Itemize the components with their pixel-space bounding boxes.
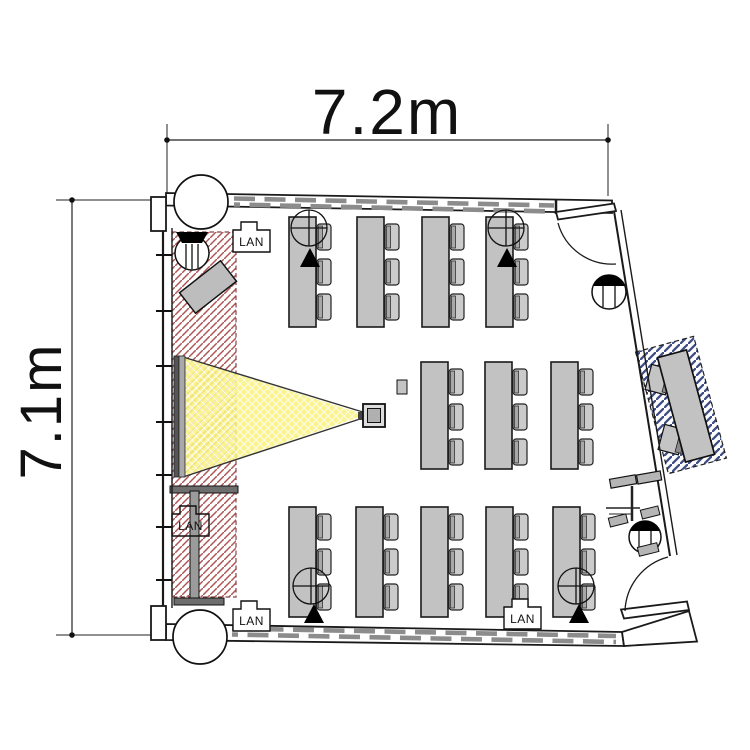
chair — [385, 294, 399, 320]
table — [289, 217, 316, 327]
chair — [579, 404, 593, 430]
chair — [449, 584, 463, 610]
chair — [513, 404, 527, 430]
chair — [579, 369, 593, 395]
table-with-chairs — [551, 362, 593, 469]
width-dimension-label: 7.2m — [312, 76, 462, 148]
table — [357, 217, 384, 327]
chair — [514, 259, 528, 285]
table — [421, 507, 448, 617]
table-with-chairs — [356, 507, 398, 617]
chair — [384, 584, 398, 610]
column — [173, 610, 227, 664]
table-with-chairs — [486, 217, 528, 327]
chair — [514, 549, 528, 575]
floor-plan-canvas: 7.2m 7.1m — [0, 0, 750, 750]
chair — [317, 514, 331, 540]
table-with-chairs — [553, 507, 595, 617]
chair — [581, 549, 595, 575]
chair — [513, 369, 527, 395]
chair — [449, 514, 463, 540]
column — [174, 175, 228, 229]
chair — [317, 294, 331, 320]
coat-rack — [606, 471, 662, 556]
chair — [581, 514, 595, 540]
dim-tick — [605, 137, 611, 143]
table — [422, 217, 449, 327]
chair — [385, 224, 399, 250]
chair — [514, 514, 528, 540]
lan-outlet-label: LAN — [239, 235, 264, 249]
table-with-chairs — [421, 362, 463, 469]
lan-outlet: LAN — [233, 601, 270, 631]
table — [485, 362, 512, 469]
chair — [449, 549, 463, 575]
lan-outlet: LAN — [233, 222, 270, 252]
chair — [385, 259, 399, 285]
chair — [579, 439, 593, 465]
chair — [450, 224, 464, 250]
table — [486, 507, 513, 617]
door-swing-arc — [558, 223, 616, 264]
chair — [449, 369, 463, 395]
dim-tick — [164, 137, 170, 143]
projection-screen — [174, 356, 185, 477]
chair — [317, 259, 331, 285]
table-with-chairs — [485, 362, 527, 469]
table-with-chairs — [421, 507, 463, 617]
instructor-area — [636, 336, 727, 473]
stool — [397, 380, 407, 394]
height-dimension-label: 7.1m — [9, 343, 74, 480]
projector — [358, 404, 385, 427]
wall-speaker-icon — [592, 275, 626, 309]
projection-beam — [183, 357, 366, 477]
table-with-chairs — [357, 217, 399, 327]
pilaster — [151, 606, 166, 640]
table — [356, 507, 383, 617]
chair — [449, 439, 463, 465]
lan-outlet-label: LAN — [239, 614, 264, 628]
dim-tick — [69, 632, 75, 638]
chair — [450, 259, 464, 285]
pilaster — [151, 197, 166, 231]
table-with-chairs — [422, 217, 464, 327]
chair — [384, 514, 398, 540]
chair — [513, 439, 527, 465]
table-with-chairs — [289, 507, 331, 617]
chair — [450, 294, 464, 320]
chair — [514, 294, 528, 320]
table-with-chairs — [289, 217, 331, 327]
chair — [384, 549, 398, 575]
chair — [581, 584, 595, 610]
floor-plan-page: 7.2m 7.1m — [0, 0, 750, 750]
door-swing-arc — [625, 557, 668, 611]
wall-speaker-icon — [175, 232, 209, 270]
lan-outlet-label: LAN — [510, 612, 535, 626]
dim-tick — [69, 197, 75, 203]
chair — [317, 549, 331, 575]
chair — [449, 404, 463, 430]
table — [421, 362, 448, 469]
table — [486, 217, 513, 327]
table — [289, 507, 316, 617]
lan-outlet-label: LAN — [178, 519, 203, 533]
table — [551, 362, 578, 469]
